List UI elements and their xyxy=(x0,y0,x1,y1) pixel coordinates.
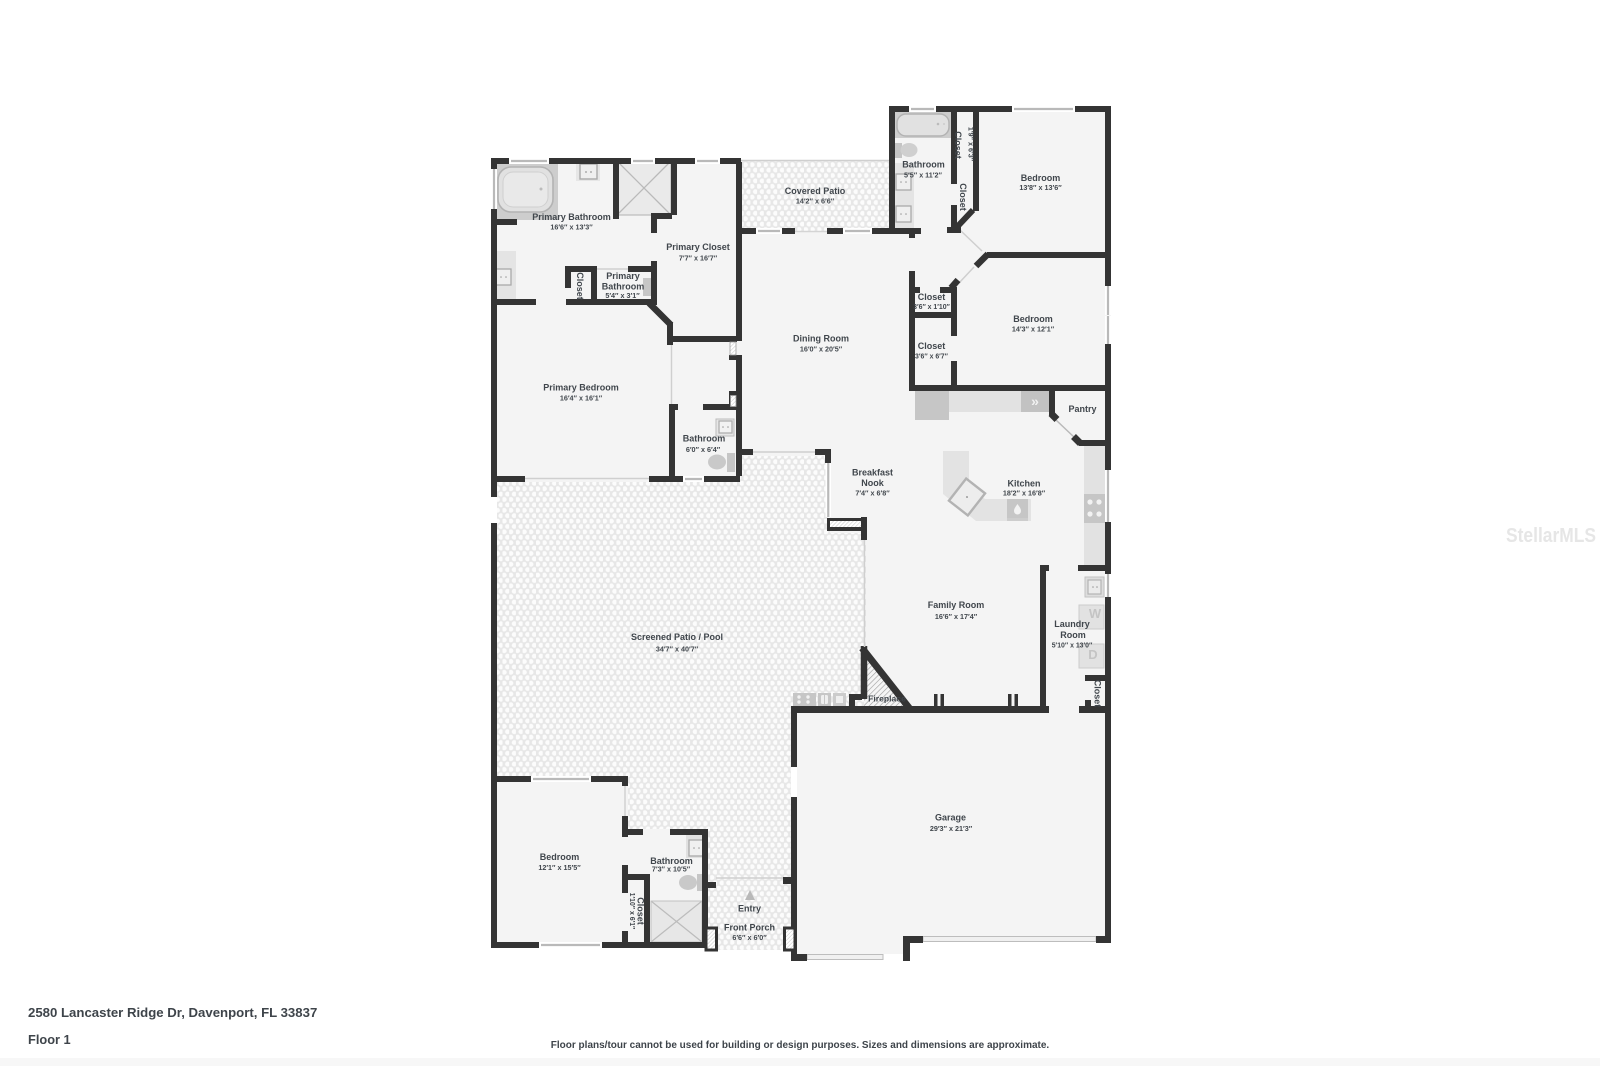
svg-text:Closet: Closet xyxy=(918,341,946,351)
svg-text:Floor 1: Floor 1 xyxy=(28,1032,71,1047)
svg-text:5′5″ x 11′2″: 5′5″ x 11′2″ xyxy=(904,171,942,180)
svg-text:Bathroom: Bathroom xyxy=(902,160,945,170)
svg-text:Closet: Closet xyxy=(1093,680,1103,708)
svg-text:16′0″ x 20′5″: 16′0″ x 20′5″ xyxy=(800,345,843,354)
svg-text:Primary Bathroom: Primary Bathroom xyxy=(532,212,611,222)
svg-text:Bedroom: Bedroom xyxy=(540,852,580,862)
svg-text:Bathroom: Bathroom xyxy=(683,434,726,444)
svg-text:2580 Lancaster Ridge Dr, Daven: 2580 Lancaster Ridge Dr, Davenport, FL 3… xyxy=(28,1005,317,1020)
svg-text:3′6″ x 1′10″: 3′6″ x 1′10″ xyxy=(913,304,950,311)
svg-text:5′4″ x 3′1″: 5′4″ x 3′1″ xyxy=(605,291,640,300)
svg-text:Fireplace: Fireplace xyxy=(868,694,906,704)
svg-text:Garage: Garage xyxy=(935,813,966,823)
svg-text:1′10″ x 6′1″: 1′10″ x 6′1″ xyxy=(628,893,635,930)
svg-text:Primary Closet: Primary Closet xyxy=(666,242,730,252)
svg-text:Family Room: Family Room xyxy=(928,600,985,610)
svg-text:7′4″ x 6′8″: 7′4″ x 6′8″ xyxy=(855,489,890,498)
svg-text:Laundry: Laundry xyxy=(1054,619,1090,629)
svg-text:16′4″ x 16′1″: 16′4″ x 16′1″ xyxy=(560,394,603,403)
svg-text:Front Porch: Front Porch xyxy=(724,923,775,933)
svg-text:Primary Bedroom: Primary Bedroom xyxy=(543,383,619,393)
svg-text:Room: Room xyxy=(1060,630,1086,640)
svg-text:14′3″ x 12′1″: 14′3″ x 12′1″ xyxy=(1012,325,1055,334)
svg-text:16′6″ x 13′3″: 16′6″ x 13′3″ xyxy=(550,223,593,232)
svg-text:Closet: Closet xyxy=(636,897,646,925)
svg-text:Closet: Closet xyxy=(918,292,946,302)
svg-text:Kitchen: Kitchen xyxy=(1007,479,1040,489)
svg-text:5′10″ x 13′0″: 5′10″ x 13′0″ xyxy=(1052,643,1093,650)
svg-text:6′6″ x 6′0″: 6′6″ x 6′0″ xyxy=(732,933,767,942)
svg-text:29′3″ x 21′3″: 29′3″ x 21′3″ xyxy=(930,824,973,833)
svg-text:Screened Patio / Pool: Screened Patio / Pool xyxy=(631,632,723,642)
svg-text:13′8″ x 13′6″: 13′8″ x 13′6″ xyxy=(1019,183,1062,192)
svg-text:Bedroom: Bedroom xyxy=(1021,173,1061,183)
svg-text:12′1″ x 15′5″: 12′1″ x 15′5″ xyxy=(538,863,581,872)
svg-text:Closet: Closet xyxy=(953,131,963,159)
svg-text:Pantry: Pantry xyxy=(1068,404,1096,414)
svg-text:Closet: Closet xyxy=(575,272,585,300)
svg-text:18′2″ x 16′8″: 18′2″ x 16′8″ xyxy=(1003,489,1046,498)
svg-text:3′6″ x 6′7″: 3′6″ x 6′7″ xyxy=(915,354,949,361)
svg-text:»: » xyxy=(1031,393,1039,409)
svg-text:16′6″ x 17′4″: 16′6″ x 17′4″ xyxy=(935,612,978,621)
svg-text:Bathroom: Bathroom xyxy=(602,282,645,292)
svg-text:Closet: Closet xyxy=(958,183,968,211)
svg-text:Floor plans/tour cannot be use: Floor plans/tour cannot be used for buil… xyxy=(551,1040,1050,1051)
svg-text:14′2″ x 6′6″: 14′2″ x 6′6″ xyxy=(796,197,835,206)
svg-text:34′7″ x 40′7″: 34′7″ x 40′7″ xyxy=(656,645,699,654)
svg-text:Dining Room: Dining Room xyxy=(793,334,849,344)
svg-text:Covered Patio: Covered Patio xyxy=(785,186,846,196)
svg-text:Breakfast: Breakfast xyxy=(852,468,893,478)
svg-text:Entry: Entry xyxy=(738,904,761,914)
svg-text:Nook: Nook xyxy=(861,478,884,488)
svg-text:6′0″ x 6′4″: 6′0″ x 6′4″ xyxy=(686,445,721,454)
svg-text:W: W xyxy=(1089,606,1102,621)
svg-text:StellarMLS: StellarMLS xyxy=(1506,525,1596,547)
svg-text:7′7″ x 16′7″: 7′7″ x 16′7″ xyxy=(679,254,718,263)
svg-text:Primary: Primary xyxy=(606,271,640,281)
svg-text:1′9″ x 6′3″: 1′9″ x 6′3″ xyxy=(967,127,976,162)
svg-text:7′3″ x 10′5″: 7′3″ x 10′5″ xyxy=(652,865,691,874)
svg-text:Bedroom: Bedroom xyxy=(1013,314,1053,324)
